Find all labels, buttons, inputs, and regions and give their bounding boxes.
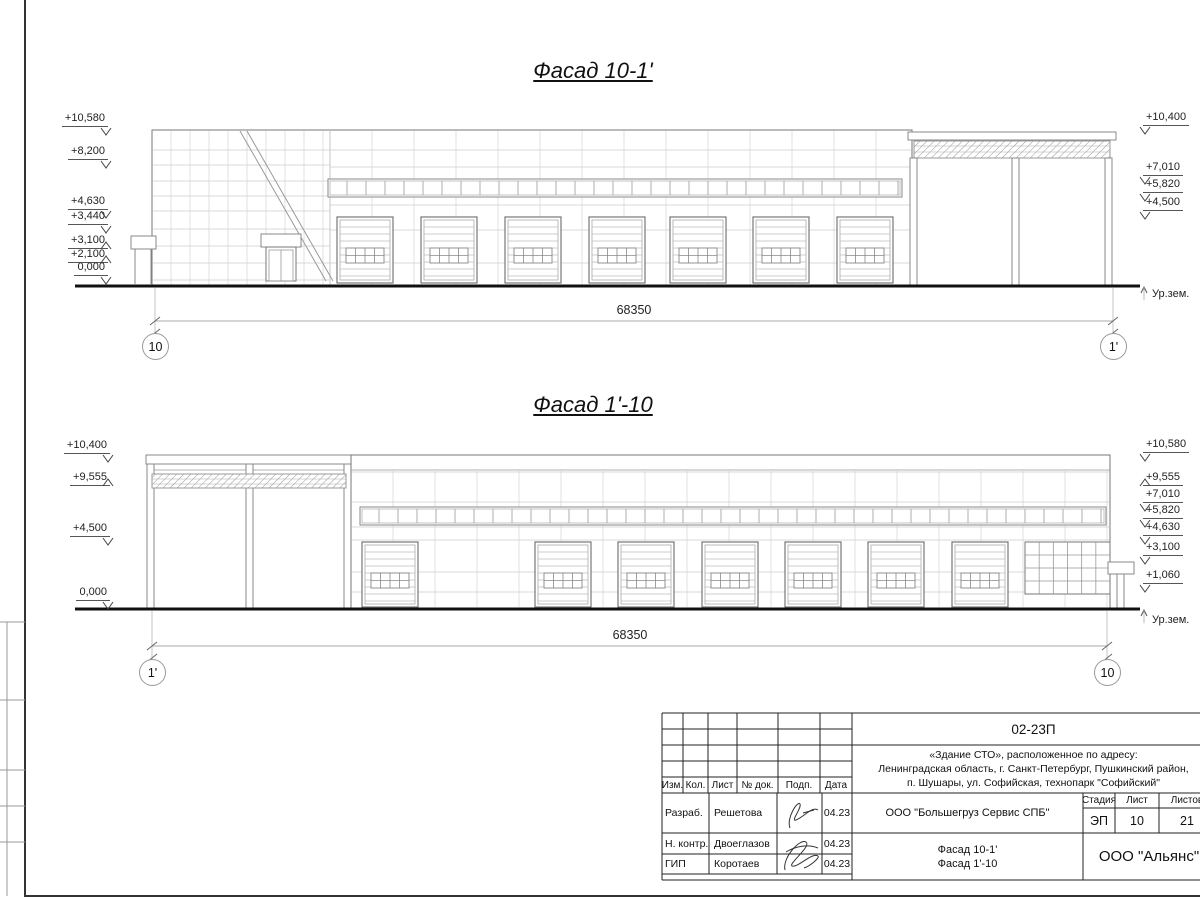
elevation-mark: +4,630 [26, 195, 108, 210]
stamp-col-izm: Изм. [662, 777, 683, 793]
elevation-arrow-icon [1139, 126, 1151, 135]
sheet-label: Лист [1115, 793, 1159, 808]
role-razrab: Разраб. [662, 793, 711, 833]
elevation-arrow-icon [1139, 478, 1151, 487]
elevation-mark: +3,100 [26, 234, 108, 249]
elevation-mark: 0,000 [26, 586, 110, 601]
stamp-col-ndok: № док. [737, 777, 778, 793]
elevation-mark: +4,630 [1143, 521, 1193, 536]
date-gip: 04.23 [822, 854, 852, 874]
elevation-mark: +10,400 [1143, 111, 1191, 126]
elevation-mark: +3,440 [26, 210, 108, 225]
sheets-label: Листов [1159, 793, 1200, 808]
elevation-arrow-icon [102, 478, 114, 487]
date-razrab: 04.23 [822, 793, 852, 833]
facade-1-title: Фасад 10-1' [0, 58, 1186, 84]
sheets-total: 21 [1159, 808, 1200, 833]
elevation-mark: +10,580 [26, 112, 108, 127]
role-nkontr: Н. контр. [662, 833, 711, 854]
doc-number: 02-23П [852, 713, 1200, 745]
elevation-mark: +1,060 [1143, 569, 1193, 584]
axis-bubble: 10 [1094, 659, 1121, 686]
elevation-arrow-icon [1139, 556, 1151, 565]
drawing-title-line: Фасад 1'-10 [852, 857, 1083, 871]
elevation-arrow-icon [102, 537, 114, 546]
elevation-mark: 0,000 [26, 261, 108, 276]
elevation-arrow-icon [100, 276, 112, 285]
address-line: п. Шушары, ул. Софийская, технопарк "Соф… [852, 776, 1200, 790]
elevation-arrow-icon [1139, 584, 1151, 593]
elevation-mark: +4,500 [1143, 196, 1191, 211]
ground-level-label: Ур.зем. [1152, 614, 1189, 626]
role-gip: ГИП [662, 854, 711, 874]
elevation-arrow-icon [100, 160, 112, 169]
address-line: «Здание СТО», расположенное по адресу: [852, 748, 1200, 762]
drawing-sheet: Фасад 10-1' Фасад 1'-10 68350 68350 10 1… [0, 0, 1200, 900]
company-name: ООО "Большегруз Сервис СПБ" [852, 793, 1083, 833]
stage-label: Стадия [1083, 793, 1115, 808]
dimension-label: 68350 [559, 303, 709, 317]
org-name: ООО "Альянс" [1083, 833, 1200, 880]
dimension-label: 68350 [555, 628, 705, 642]
stamp-col-data: Дата [820, 777, 852, 793]
axis-bubble: 10 [142, 333, 169, 360]
facade-2-title: Фасад 1'-10 [0, 392, 1186, 418]
stage-value: ЭП [1083, 808, 1115, 833]
drawing-titles: Фасад 10-1' Фасад 1'-10 [852, 843, 1083, 871]
elevation-arrow-icon [100, 127, 112, 136]
stamp-col-podp: Подп. [778, 777, 820, 793]
signatures [785, 803, 819, 870]
elevation-mark: +5,820 [1143, 178, 1191, 193]
date-nkontr: 04.23 [822, 833, 852, 854]
name-nkontr: Двоеглазов [711, 833, 780, 854]
elevation-mark: +9,555 [1143, 471, 1193, 486]
stamp-col-kol: Кол. [683, 777, 708, 793]
elevation-arrow-icon [102, 454, 114, 463]
elevation-mark: +5,820 [1143, 504, 1193, 519]
name-gip: Коротаев [711, 854, 780, 874]
elevation-arrow-icon [102, 601, 114, 610]
stamp-col-list: Лист [708, 777, 737, 793]
sheet-number: 10 [1115, 808, 1159, 833]
axis-bubble: 1' [139, 659, 166, 686]
axis-bubble: 1' [1100, 333, 1127, 360]
elevation-mark: +7,010 [1143, 161, 1191, 176]
elevation-mark: +8,200 [26, 145, 108, 160]
elevation-mark: +9,555 [26, 471, 110, 486]
name-razrab: Решетова [711, 793, 778, 833]
elevation-arrow-icon [1139, 211, 1151, 220]
elevation-mark: +10,580 [1143, 438, 1193, 453]
drawing-title-line: Фасад 10-1' [852, 843, 1083, 857]
address-line: Ленинградская область, г. Санкт-Петербур… [852, 762, 1200, 776]
elevation-arrow-icon [100, 225, 112, 234]
elevation-mark: +4,500 [26, 522, 110, 537]
elevation-arrow-icon [1139, 453, 1151, 462]
project-address: «Здание СТО», расположенное по адресу: Л… [852, 748, 1200, 790]
elevation-mark: +10,400 [26, 439, 110, 454]
elevation-mark: +3,100 [1143, 541, 1193, 556]
elevation-mark: +7,010 [1143, 488, 1193, 503]
ground-level-label: Ур.зем. [1152, 288, 1189, 300]
